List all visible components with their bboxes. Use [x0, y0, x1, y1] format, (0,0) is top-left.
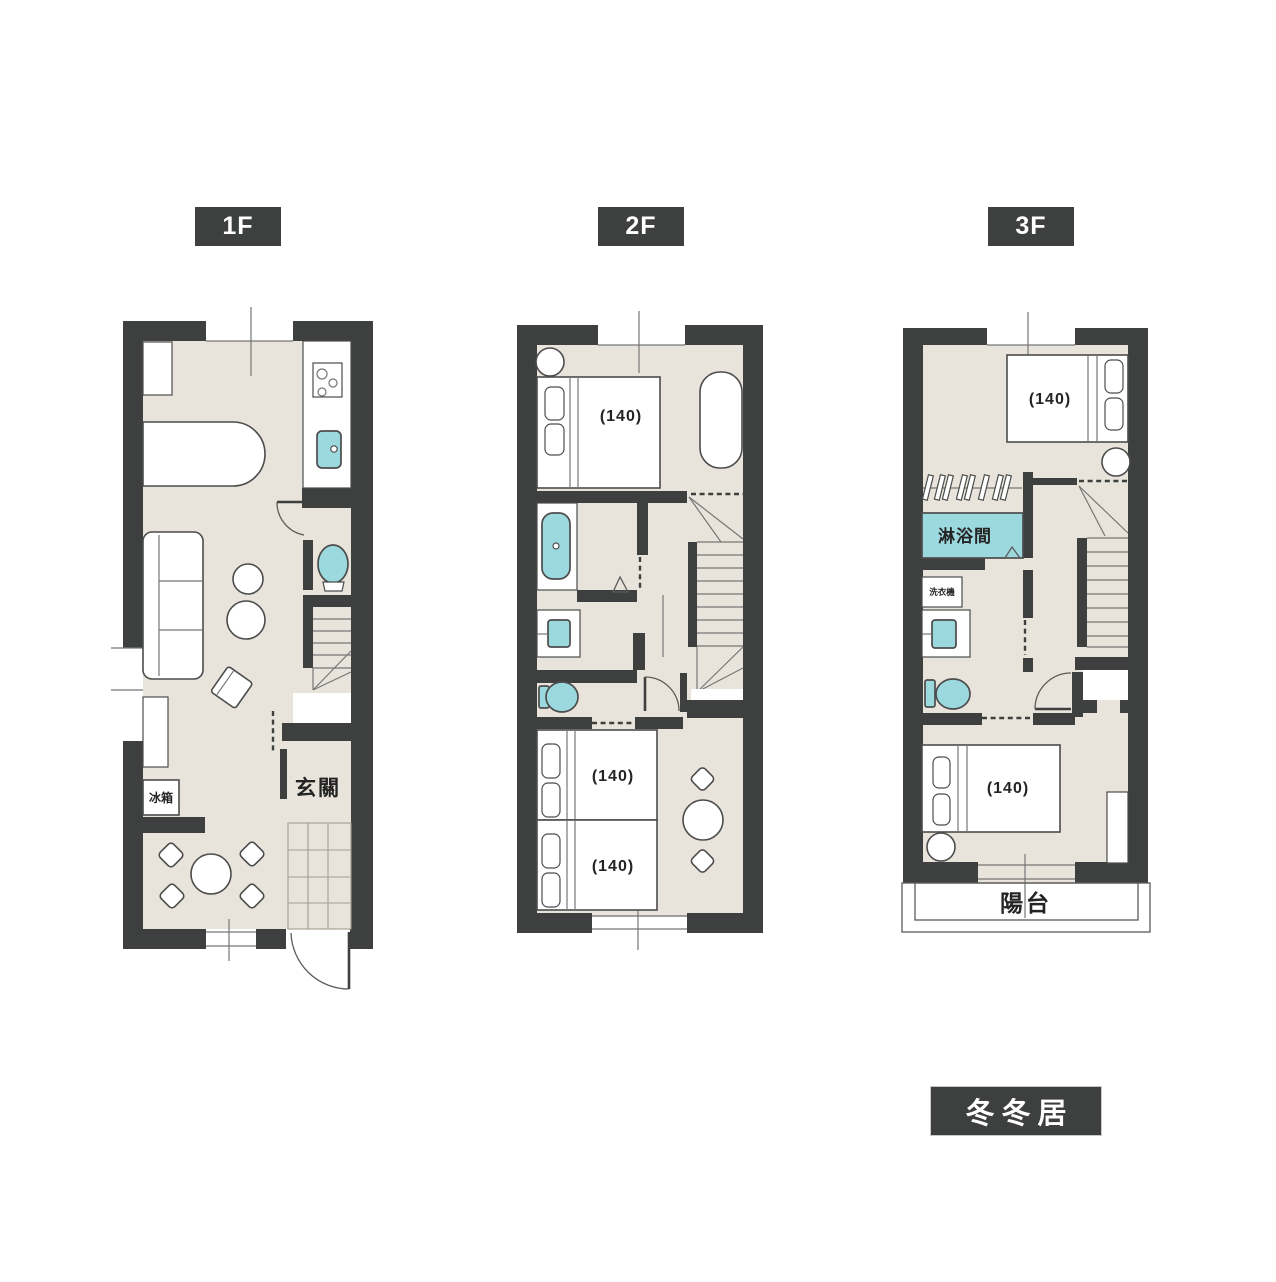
storage-cabinet	[143, 342, 172, 395]
floor-tag-2f: 2F	[598, 207, 684, 246]
counter-island	[143, 422, 265, 486]
understair-nook	[1083, 670, 1128, 700]
fridge: 冰箱	[143, 780, 179, 815]
shower-label: 淋浴間	[938, 526, 992, 546]
bathroom-sink	[537, 610, 580, 657]
pillow	[542, 744, 560, 778]
bedside-stool	[927, 833, 955, 861]
bed-size-label: (140)	[600, 408, 642, 425]
bedside-stool	[1102, 448, 1130, 476]
pillow	[545, 387, 564, 420]
washer-label: 洗衣機	[929, 587, 955, 597]
floor-plan-3f: (140) 淋浴間 洗衣機	[901, 308, 1152, 988]
desk	[1107, 792, 1128, 863]
pillow	[1105, 360, 1123, 393]
balcony: 陽台	[902, 883, 1150, 932]
bedside-stool	[536, 348, 564, 376]
bed-size-label: (140)	[987, 780, 1029, 797]
bed-double-top: (140)	[537, 377, 660, 488]
brand-badge: 冬冬居	[930, 1086, 1102, 1136]
balcony-label: 陽台	[1000, 890, 1052, 916]
pillow	[542, 873, 560, 907]
bed-double-top: (140)	[1007, 355, 1128, 442]
floor-tag-3f: 3F	[988, 207, 1074, 246]
pillow	[542, 834, 560, 868]
pillow	[933, 794, 950, 825]
pillow	[1105, 398, 1123, 430]
stove-icon	[313, 363, 342, 397]
entrance-label: 玄關	[295, 776, 341, 800]
shower-room: 淋浴間	[922, 513, 1023, 558]
understair-nook	[293, 693, 351, 723]
dining-table	[191, 854, 231, 894]
coffee-table	[227, 601, 265, 639]
pillow	[933, 757, 950, 788]
bed-size-label: (140)	[592, 858, 634, 875]
bed-size-label: (140)	[592, 768, 634, 785]
floor-plan-1f: 冰箱 玄關	[123, 301, 373, 1001]
pillow	[542, 783, 560, 817]
floor-plan-2f: (140)	[517, 305, 763, 985]
understair-nook	[691, 689, 743, 700]
kitchen	[303, 341, 351, 488]
side-table	[233, 564, 263, 594]
bed-size-label: (140)	[1029, 391, 1071, 408]
bed-double-mid: (140)	[537, 730, 657, 820]
fridge-label: 冰箱	[149, 790, 173, 805]
washer: 洗衣機	[922, 577, 962, 607]
toilet-icon	[539, 682, 578, 712]
front-door	[291, 932, 349, 989]
bed-double-bottom: (140)	[922, 745, 1060, 832]
round-table	[683, 800, 723, 840]
floorplan-page: 1F 2F 3F	[0, 0, 1276, 1282]
wardrobe	[700, 372, 742, 468]
toilet-icon	[925, 679, 970, 709]
bed-double-bottom: (140)	[537, 820, 657, 910]
pillow	[545, 424, 564, 455]
bathroom-sink	[922, 610, 970, 657]
bathtub	[537, 503, 577, 590]
cabinet-tall	[143, 697, 168, 767]
floor-tag-1f: 1F	[195, 207, 281, 246]
sofa	[143, 532, 203, 679]
